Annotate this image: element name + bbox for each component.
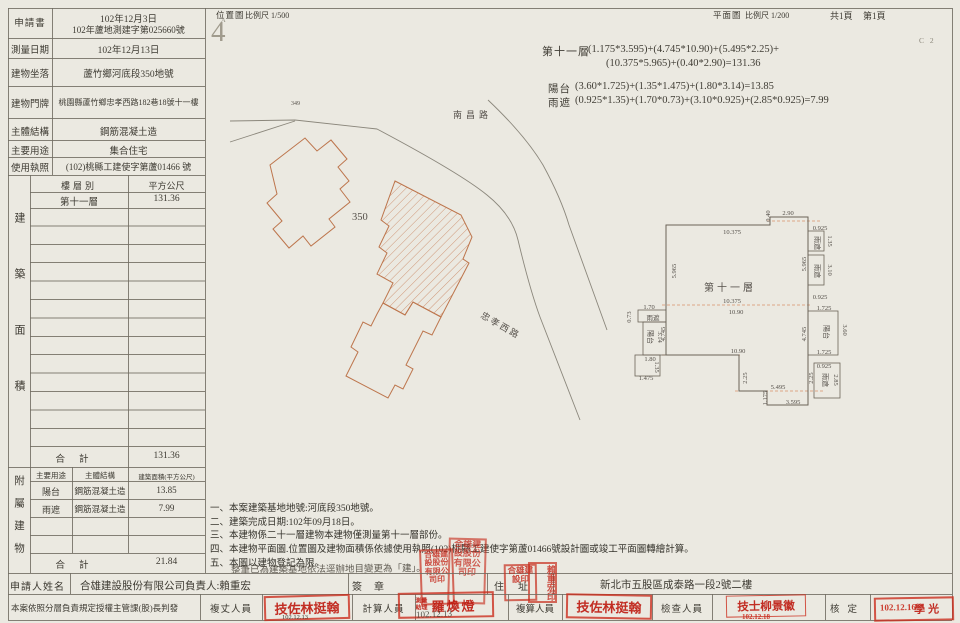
dim: 5.495 (771, 384, 786, 391)
approver-stamp: 102.12.16 學光 (874, 596, 954, 621)
annex-area: 7.99 (128, 503, 205, 513)
applicant-label: 申請人姓名 (10, 578, 65, 593)
dim: 雨遮 (813, 236, 822, 250)
area-side-label: 建築面積 (11, 212, 27, 442)
north-arrow: 4 (211, 18, 226, 47)
info-value: (102)桃縣工建使字第蘆01466 號 (52, 160, 205, 173)
grid-line (8, 86, 205, 87)
floor-plan-caption: 平面圖 (713, 9, 742, 21)
checker-label: 複算人員 (508, 601, 562, 615)
info-value: 102年12月13日 (52, 42, 205, 56)
lot-number: 350 (352, 212, 368, 223)
approver-label: 核定 (825, 601, 870, 615)
formula-floor-2: (10.375*5.965)+(0.40*2.90)=131.36 (606, 58, 760, 69)
floor-plan-drawing: 第十一層 0.40 2.90 10.375 5.965 10.375 10.90… (612, 186, 872, 421)
border-bottom (8, 620, 952, 621)
border-right (952, 8, 953, 620)
page-number: 第1頁 (863, 9, 886, 22)
annex-use: 雨遮 (30, 503, 72, 516)
empty-rows (30, 208, 205, 447)
note-2: 二、建築完成日期:102年09月18日。 (210, 514, 360, 528)
annex-struct: 鋼筋混凝土造 (72, 503, 128, 515)
approver-date: 102.12.16 (880, 602, 916, 613)
extension-lines (662, 221, 824, 391)
grid-line (30, 553, 205, 554)
annex-total-label: 合計 (30, 557, 128, 571)
dim: 雨遮 (647, 313, 661, 322)
annex-total: 21.84 (128, 557, 205, 567)
dim: 0.40 (765, 210, 772, 221)
dim: 4.745 (660, 327, 667, 342)
grid-line (30, 481, 205, 482)
col-floor: 樓層別 (30, 179, 128, 192)
dim: 10.90 (729, 309, 744, 316)
dim: 3.595 (786, 399, 801, 406)
border-top (8, 8, 952, 9)
dim: 陽台 (822, 325, 831, 339)
annex-col-struct: 主體結構 (72, 470, 128, 481)
surveyor-label: 複丈人員 (200, 601, 262, 615)
grid-line (30, 517, 205, 518)
building-outline-adjacent (267, 138, 350, 248)
dim: 0.925 (817, 363, 832, 370)
road-label-north: 南昌路 (453, 109, 492, 120)
dim: 2.25 (742, 372, 749, 383)
approver-stamp-name: 學光 (914, 601, 942, 617)
building-outline-surveyed-hatched (377, 181, 472, 317)
note-1: 一、本案建築基地地號:河底段350地號。 (210, 500, 379, 514)
info-value: 集合住宅 (52, 143, 205, 157)
dim: 1.725 (817, 349, 832, 356)
dim: 0.925 (813, 294, 828, 301)
info-label: 主體結構 (8, 124, 52, 138)
grid-line (8, 118, 205, 119)
total-pages: 共1頁 (830, 9, 853, 22)
dim: 2.85 (832, 374, 839, 385)
address-value: 新北市五股區成泰路一段2號二樓 (600, 577, 752, 592)
grid-line (8, 38, 205, 39)
grid-line (348, 573, 349, 594)
grid-line (8, 140, 205, 141)
annex-use: 陽台 (30, 485, 72, 498)
grid-line (712, 594, 713, 620)
info-label: 使用執照 (8, 160, 52, 174)
dim: 1.35 (653, 361, 660, 372)
info-value-2: 102年蘆地測建字第025660號 (52, 23, 205, 36)
col-area: 平方公尺 (128, 179, 205, 192)
area-total-label: 合計 (30, 451, 128, 465)
dim: 10.375 (723, 229, 741, 236)
building-outline-surveyed-wing (346, 302, 441, 398)
adjacent-lot-number: 349 (291, 101, 300, 107)
grid-line (30, 535, 205, 536)
note-3: 三、本建物係二十一層建物本建物僅測量第十一層部份。 (210, 527, 448, 541)
inspector-label: 檢查人員 (652, 601, 712, 615)
grid-line (8, 467, 205, 468)
dim: 4.745 (801, 327, 808, 342)
grid-line (8, 58, 205, 59)
dim: 3.10 (826, 264, 833, 275)
area-total: 131.36 (128, 451, 205, 461)
dim: 10.90 (731, 348, 746, 355)
info-label: 建物坐落 (8, 66, 52, 80)
dim: 陽台 (646, 330, 655, 344)
annex-col-use: 主要用途 (30, 470, 72, 481)
grid-line (8, 157, 205, 158)
dim: 1.725 (817, 305, 832, 312)
dim: 2.90 (782, 210, 793, 217)
sheet-code: C 2 (919, 36, 936, 45)
info-value: 蘆竹鄉河底段350地號 (52, 66, 205, 80)
grid-line (8, 175, 205, 176)
dim: 5.965 (801, 257, 808, 272)
floor-row-area: 131.36 (128, 194, 205, 204)
formula-floor-1: (1.175*3.595)+(4.745*10.90)+(5.495*2.25)… (588, 44, 779, 55)
dim: 雨遮 (813, 264, 822, 278)
calculator-date: 102.12.13 (416, 608, 452, 619)
road-label-south: 忠孝西路 (479, 309, 523, 341)
delegation-note: 本案依照分層負責規定授權主管課(股)長判發 (11, 602, 178, 614)
info-label: 申請書 (8, 15, 52, 29)
dim: 1.35 (826, 235, 833, 246)
site-plan-drawing: 350 349 南昌路 忠孝西路 (225, 55, 625, 525)
floor-plan-scale: 比例尺 1/200 (745, 10, 789, 21)
dim: 5.965 (671, 264, 678, 279)
dim: 3.60 (841, 324, 848, 335)
signature-seal-label: 簽章 (352, 578, 396, 593)
info-label: 測量日期 (8, 42, 52, 56)
dim: 雨遮 (821, 373, 830, 387)
address-label: 住址 (494, 578, 542, 593)
info-value: 桃園縣蘆竹鄉忠孝西路182巷18號十一樓 (52, 97, 205, 108)
dim: 2.25 (808, 372, 815, 383)
dim: 10.375 (723, 298, 741, 305)
dim: 1.70 (643, 304, 654, 311)
floor-row-name: 第十一層 (30, 194, 128, 208)
surveyor-date: 102.12.13 (282, 614, 308, 621)
site-plan-scale: 比例尺 1/500 (245, 10, 289, 21)
dim: 1.475 (639, 375, 654, 382)
grid-line (30, 499, 205, 500)
info-label: 建物門牌 (8, 96, 52, 110)
grid-line (870, 594, 871, 620)
dim: 1.175 (762, 391, 769, 406)
building-survey-sheet: 申請書 102年12月3日 102年蘆地測建字第025660號 測量日期 102… (0, 0, 960, 623)
floor-plan-title: 第十一層 (704, 281, 756, 294)
left-table-edge (205, 8, 206, 573)
grid-line (70, 573, 71, 594)
dimension-labels: 0.40 2.90 10.375 5.965 10.375 10.90 10.9… (626, 210, 848, 406)
annex-struct: 鋼筋混凝土造 (72, 485, 128, 497)
annex-area: 13.85 (128, 485, 205, 495)
dim: 0.925 (813, 225, 828, 232)
applicant-name: 合雄建設股份有限公司負責人:賴重宏 (80, 578, 251, 593)
info-value: 鋼筋混凝土造 (52, 124, 205, 138)
annex-col-area: 建築面積(平方公尺) (128, 471, 205, 481)
annex-side-label: 附屬建物 (11, 475, 26, 565)
dim: 0.73 (626, 311, 633, 322)
grid-line (8, 573, 952, 574)
info-label: 主要用途 (8, 143, 52, 157)
grid-line (562, 594, 563, 620)
checker-stamp: 技佐林挺翰 (566, 593, 652, 619)
grid-line (30, 192, 205, 193)
inspector-date: 102.12.18 (742, 613, 770, 621)
